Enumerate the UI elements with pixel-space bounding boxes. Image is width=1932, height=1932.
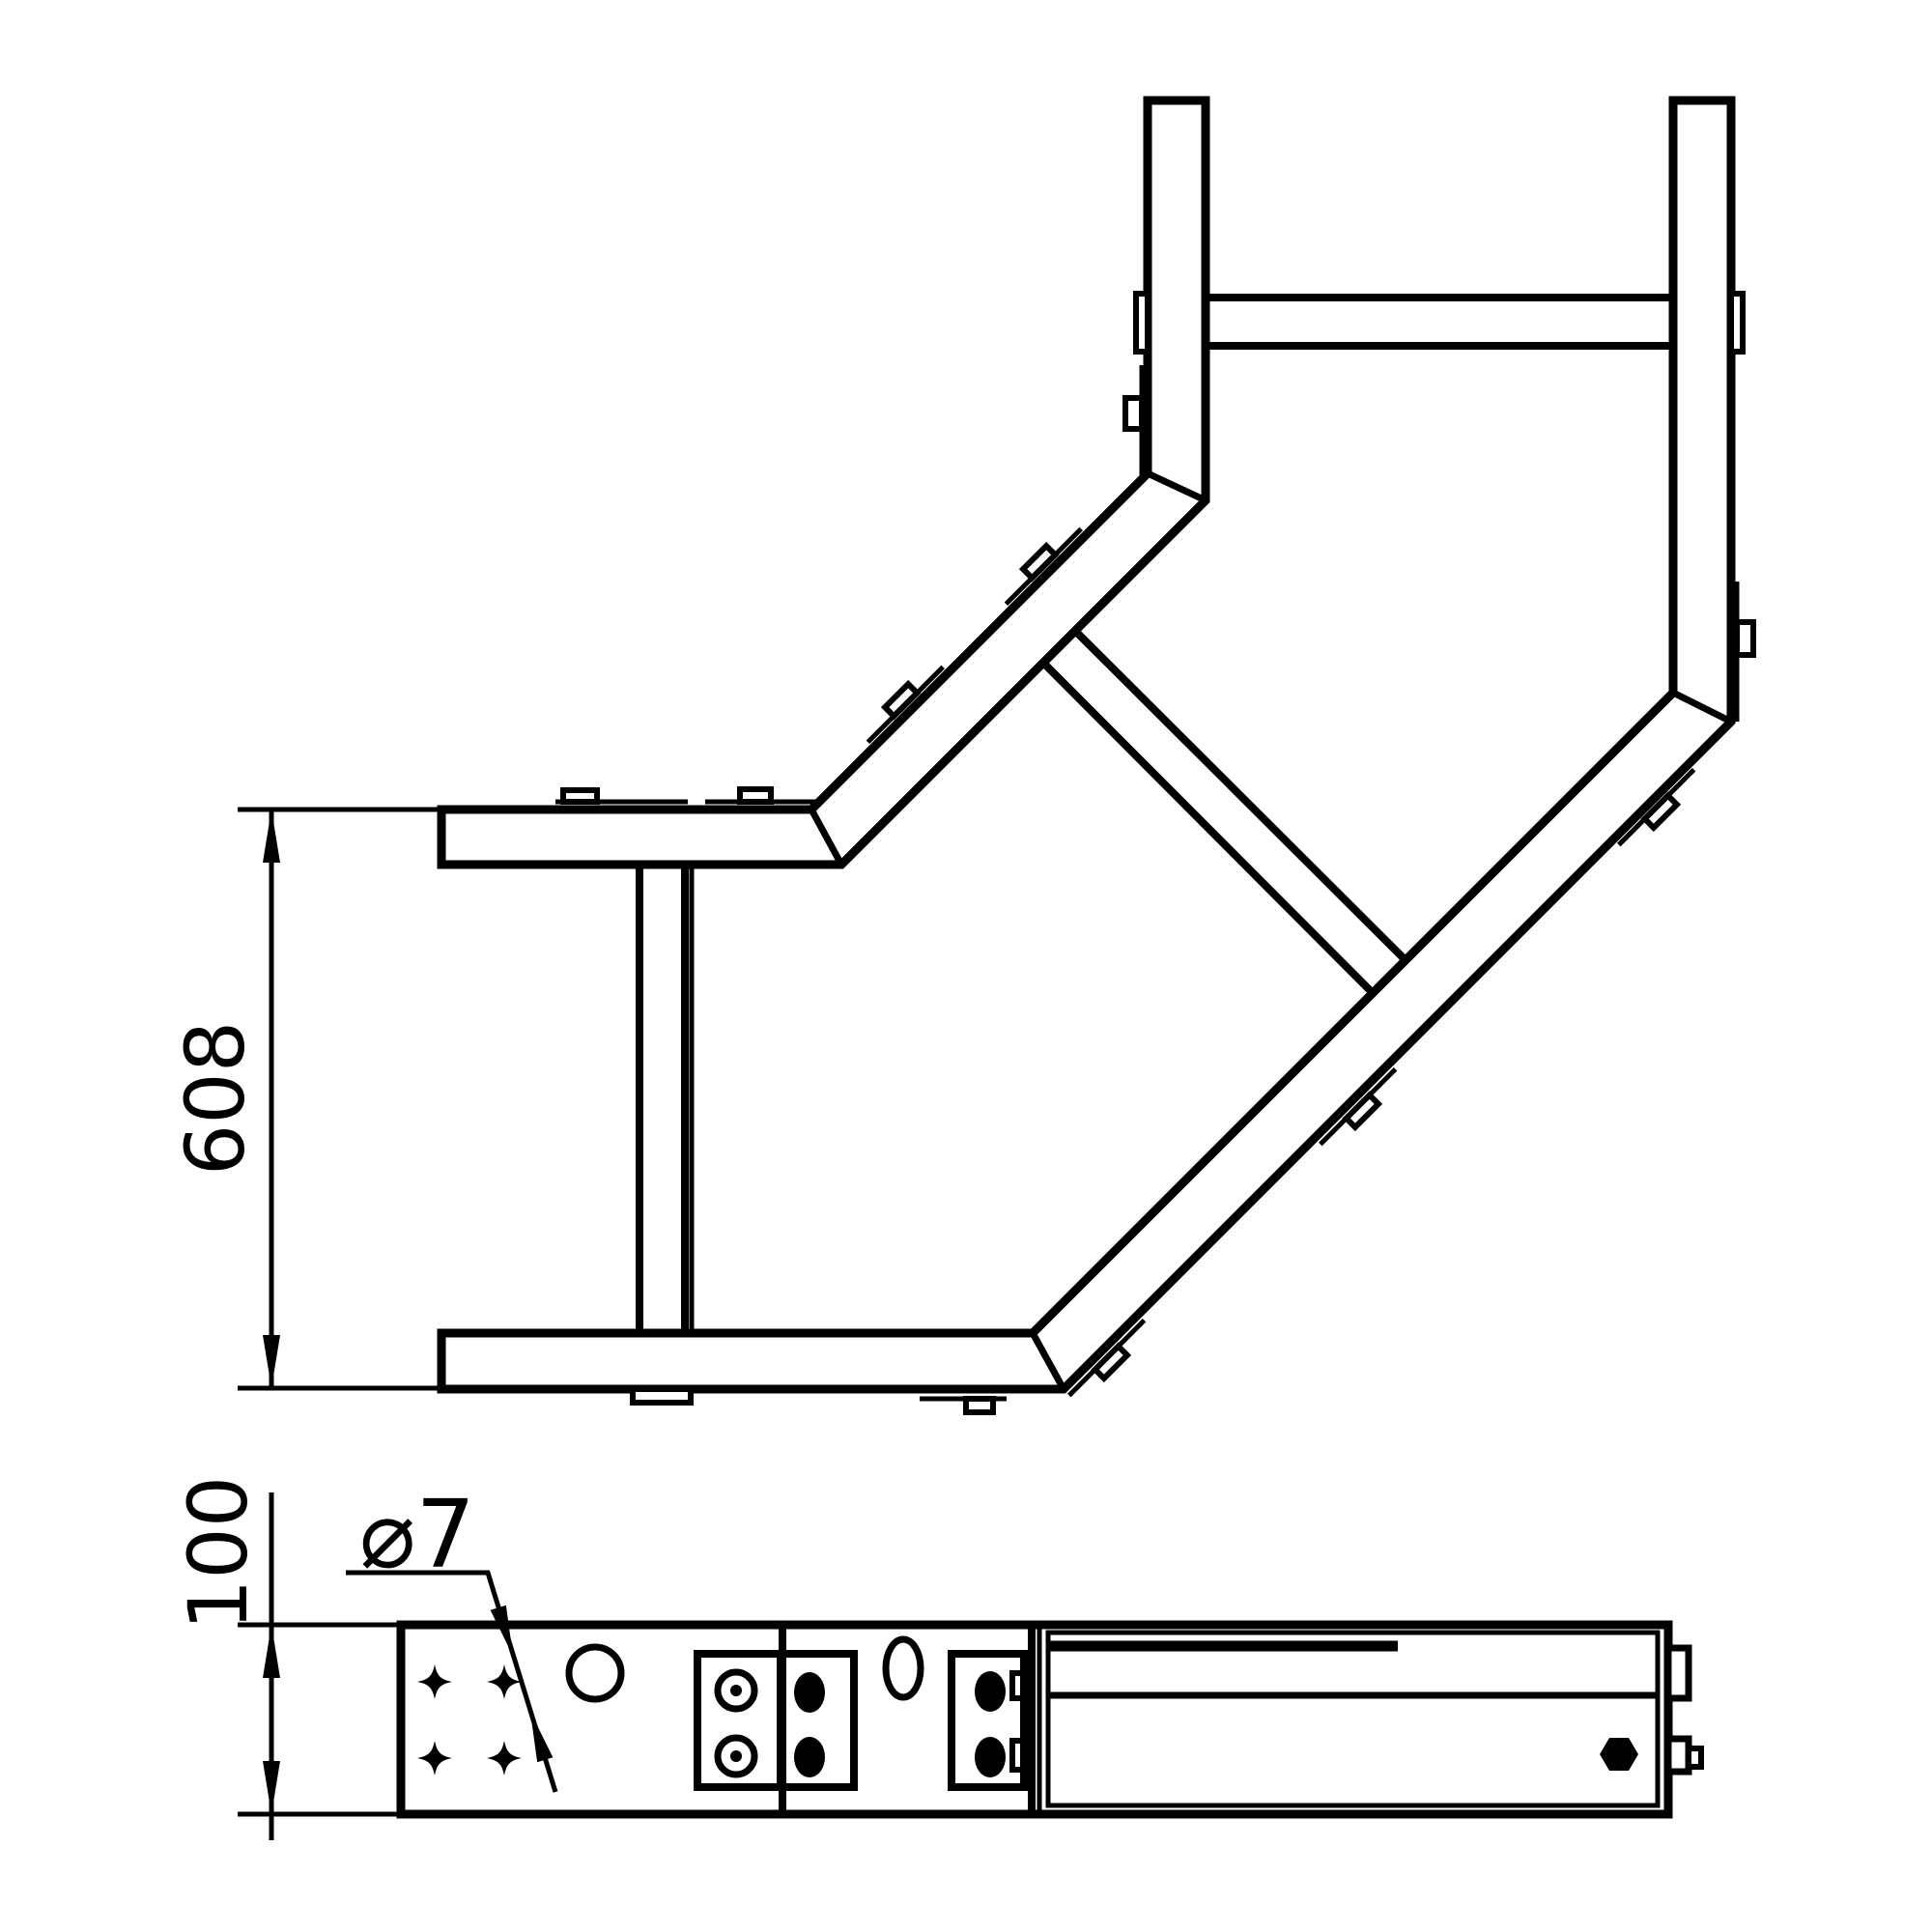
inner-rail-tabs [555, 294, 1148, 802]
top-view [441, 100, 1753, 1412]
rung-left-arm [639, 865, 685, 1333]
bolt-center [730, 1685, 742, 1696]
bolt-center [730, 1750, 742, 1762]
dim-100-label: 100 [171, 1476, 266, 1631]
bolt-solid [794, 1737, 825, 1777]
drawing-sheet: 608 100 ⌀7 [0, 0, 1932, 1932]
side-view [401, 1625, 1701, 1814]
rung-top-arm [1206, 298, 1673, 346]
slotted-hole [886, 1639, 921, 1697]
bolt-solid [794, 1672, 825, 1713]
arrowhead [263, 1335, 280, 1388]
round-hole [569, 1647, 621, 1699]
arrowhead [263, 1625, 280, 1678]
inner-rail [441, 100, 1206, 865]
dimension-608: 608 [168, 810, 441, 1388]
drawing-canvas: 608 100 ⌀7 [0, 0, 1932, 1932]
arrowhead [263, 1761, 280, 1814]
arrowhead [263, 810, 280, 863]
dim-608-label: 608 [168, 1021, 263, 1176]
bolt-solid [975, 1737, 1006, 1777]
bolt-solid [975, 1671, 1006, 1712]
rung-diagonal [1043, 631, 1406, 993]
